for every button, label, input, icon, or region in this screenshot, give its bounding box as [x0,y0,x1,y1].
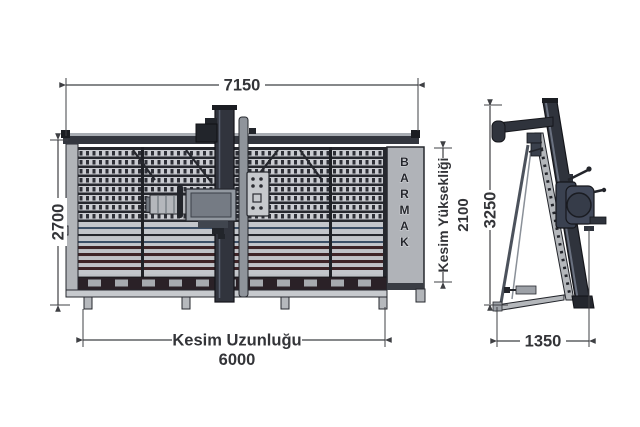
frame-post [141,147,144,280]
cut-length-value: 6000 [219,351,256,369]
cut-height-value: 2100 [455,198,472,231]
panel-saw-technical-drawing: B A R M A K [0,0,640,427]
dimension-cut-length: Kesim Uzunluğu 6000 [83,307,385,369]
carriage-handle [177,185,183,218]
panel-foot [416,289,425,302]
blade-housing [567,193,591,217]
brand-letter: R [400,187,409,201]
side-depth-value: 1350 [525,333,562,351]
column-motor [196,124,217,142]
arm-end-cap [492,121,505,142]
brand-letter: B [400,155,409,169]
frame-left-post [66,144,78,290]
machine-feet [84,297,387,309]
brand-panel: B A R M A K [387,147,425,302]
brand-letter: A [400,171,409,185]
front-view: B A R M A K [58,105,425,309]
drawing-canvas: B A R M A K [0,0,640,427]
brand-letter: M [400,203,410,217]
control-panel [247,172,269,216]
brand-letter: K [400,235,409,249]
side-height-value: 3250 [482,192,500,229]
beam-cap [542,98,558,103]
frame-post [329,147,332,280]
overall-width-value: 7150 [224,77,261,95]
cut-length-label: Kesim Uzunluğu [172,332,301,350]
overall-height-value: 2700 [50,204,68,241]
beam-foot [572,296,594,308]
cut-height-label: Kesim Yüksekliği [435,158,451,273]
dimension-cut-height: Kesim Yüksekliği 2100 [434,148,472,282]
brand-letter: A [400,219,409,233]
